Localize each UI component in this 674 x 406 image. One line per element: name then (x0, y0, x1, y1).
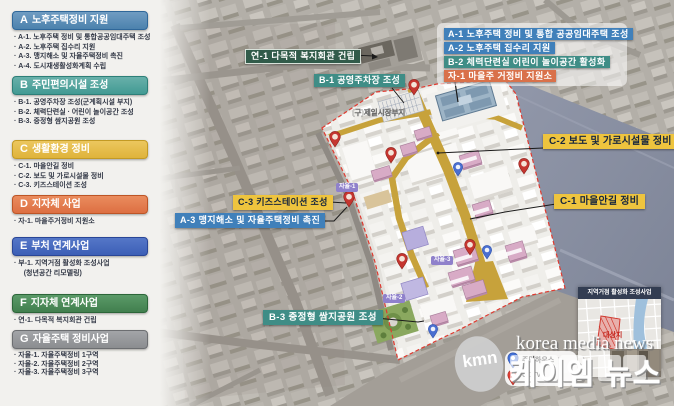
svg-text:(구)제일시장부지: (구)제일시장부지 (352, 107, 405, 117)
